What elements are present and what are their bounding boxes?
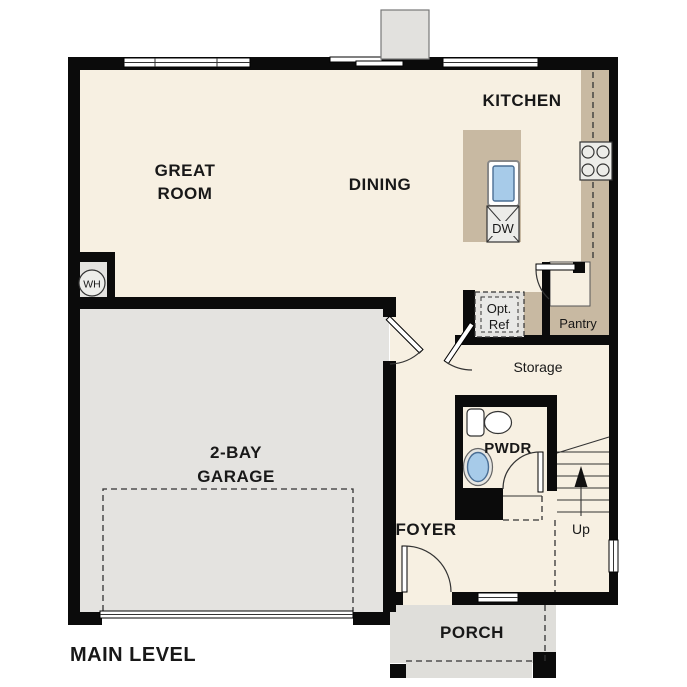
floor-plan-canvas: DW Opt. Ref WH [0, 0, 687, 687]
pantry-label: Pantry [559, 316, 597, 331]
wall-left [68, 57, 80, 625]
water-heater-icon: WH [79, 270, 105, 296]
wall-greatroom-garage [80, 297, 396, 309]
ref-side-cabinet [524, 292, 542, 336]
kitchen-label: KITCHEN [482, 91, 561, 110]
porch-step [406, 663, 532, 678]
level-title: MAIN LEVEL [70, 644, 196, 666]
wall-pwdr-top [455, 395, 556, 407]
great-room-label-line2: ROOM [158, 184, 213, 203]
wall-pwdr-left [455, 395, 463, 495]
porch-label: PORCH [440, 623, 504, 642]
wall-garage-bottom-left [68, 612, 102, 625]
wall-garage-right-upper [383, 297, 396, 317]
window-stair-landing [609, 540, 618, 572]
stairs-up-label: Up [572, 521, 590, 537]
garage-label-line2: GARAGE [197, 467, 275, 486]
dishwasher-label: DW [492, 221, 514, 236]
great-room-label-line1: GREAT [155, 161, 216, 180]
garage-door-opening [100, 611, 353, 618]
refrigerator-icon: Opt. Ref [475, 292, 524, 337]
window-kitchen [443, 58, 538, 67]
chimney [381, 10, 429, 59]
porch-post-left [390, 664, 406, 678]
dining-label: DINING [349, 175, 412, 194]
wall-garage-right-lower [383, 361, 396, 612]
wall-garage-bottom-right [353, 612, 390, 625]
front-door-opening [403, 592, 452, 605]
wall-pwdr-bottom-mass [455, 488, 503, 520]
opt-ref-label-line1: Opt. [487, 301, 512, 316]
dishwasher-icon: DW [487, 206, 519, 242]
window-great-room [124, 58, 250, 67]
wall-kitchen-pantry [542, 262, 550, 340]
wall-stair-left [547, 395, 557, 491]
stove-icon [580, 142, 612, 180]
window-foyer [478, 593, 518, 602]
foyer-label: FOYER [395, 520, 456, 539]
garage-label-line1: 2-BAY [210, 443, 262, 462]
water-heater-label: WH [83, 279, 101, 291]
opt-ref-label-line2: Ref [489, 317, 510, 332]
wall-wh-right [107, 252, 115, 302]
storage-label: Storage [513, 359, 562, 375]
pwdr-label: PWDR [484, 440, 531, 457]
wall-right [609, 57, 618, 605]
floor-plan: DW Opt. Ref WH [0, 0, 687, 687]
kitchen-sink-icon [488, 161, 519, 206]
